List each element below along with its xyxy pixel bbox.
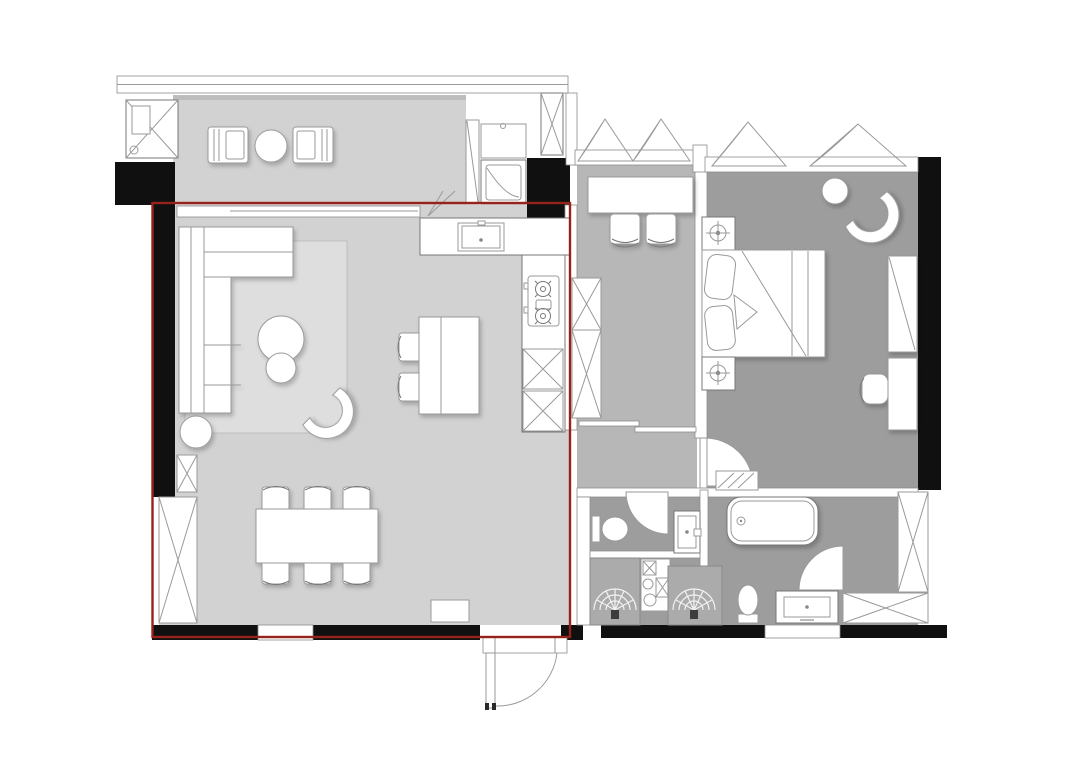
study-cabinet-1 bbox=[572, 278, 601, 330]
balcony-floor-edge bbox=[173, 95, 466, 100]
ottoman bbox=[180, 416, 212, 448]
entry bbox=[483, 637, 567, 710]
dining-table bbox=[256, 509, 378, 563]
wall-bath-left bbox=[577, 497, 590, 625]
guest-vanity bbox=[674, 511, 701, 553]
balcony-cabinet bbox=[541, 93, 563, 155]
towel-radiator bbox=[716, 471, 758, 490]
lounge-set bbox=[208, 127, 333, 163]
lounge-chair-right bbox=[293, 127, 333, 163]
kitchen-counter-top bbox=[420, 218, 570, 255]
bedroom-door-leaf bbox=[700, 438, 707, 488]
closet-tall bbox=[898, 492, 928, 592]
doormat bbox=[431, 600, 469, 622]
floor-plan bbox=[0, 0, 1080, 763]
lounge-chair-left bbox=[208, 127, 248, 163]
storage-cabinet-tall bbox=[159, 497, 197, 623]
bedroom-windows bbox=[705, 122, 918, 172]
guest-toilet bbox=[592, 516, 628, 542]
shower-stall-2 bbox=[668, 566, 722, 625]
shower-stall-1 bbox=[590, 558, 640, 625]
closet-low bbox=[843, 593, 928, 623]
master-vanity bbox=[776, 591, 838, 623]
bed-group bbox=[702, 250, 825, 357]
kitchen-counter-side bbox=[522, 255, 565, 432]
railing bbox=[117, 76, 568, 93]
fridge bbox=[481, 160, 526, 204]
entry-door-leaf bbox=[486, 653, 495, 708]
balcony-table bbox=[255, 130, 287, 162]
ac-unit bbox=[126, 100, 178, 158]
bathtub bbox=[727, 497, 818, 545]
nightstand-2 bbox=[702, 357, 735, 390]
fridge-column bbox=[466, 120, 526, 204]
dresser-low bbox=[888, 358, 917, 430]
wall-segment bbox=[152, 205, 175, 497]
study-windows bbox=[575, 119, 707, 172]
vanity-chair bbox=[860, 374, 888, 404]
upper-cabinet bbox=[481, 124, 526, 158]
dining-set bbox=[256, 487, 378, 585]
study-desk bbox=[588, 177, 693, 213]
study-chair-2 bbox=[646, 214, 676, 247]
coffee-table-small bbox=[266, 353, 296, 383]
master-toilet bbox=[738, 585, 758, 623]
laundry-stack bbox=[641, 559, 670, 611]
entry-threshold bbox=[483, 637, 567, 653]
wall-segment bbox=[601, 625, 765, 638]
storage-cabinet-small bbox=[177, 455, 197, 492]
entry-door-swing bbox=[495, 653, 557, 706]
pillow-1 bbox=[703, 253, 736, 300]
window-gap-bath bbox=[765, 625, 840, 638]
nightstand-1 bbox=[702, 217, 735, 250]
bedroom-table bbox=[822, 178, 848, 204]
wall-segment bbox=[918, 157, 941, 490]
study-cabinet-2 bbox=[572, 330, 601, 418]
study-chair-1 bbox=[610, 214, 640, 247]
sliding-door-living bbox=[177, 206, 420, 217]
wall-segment bbox=[840, 625, 947, 638]
wall-segment bbox=[527, 158, 570, 218]
wall-segment bbox=[115, 162, 175, 205]
pillow-2 bbox=[704, 305, 736, 352]
floor-plan-canvas bbox=[0, 0, 1080, 763]
work-table bbox=[419, 317, 479, 414]
